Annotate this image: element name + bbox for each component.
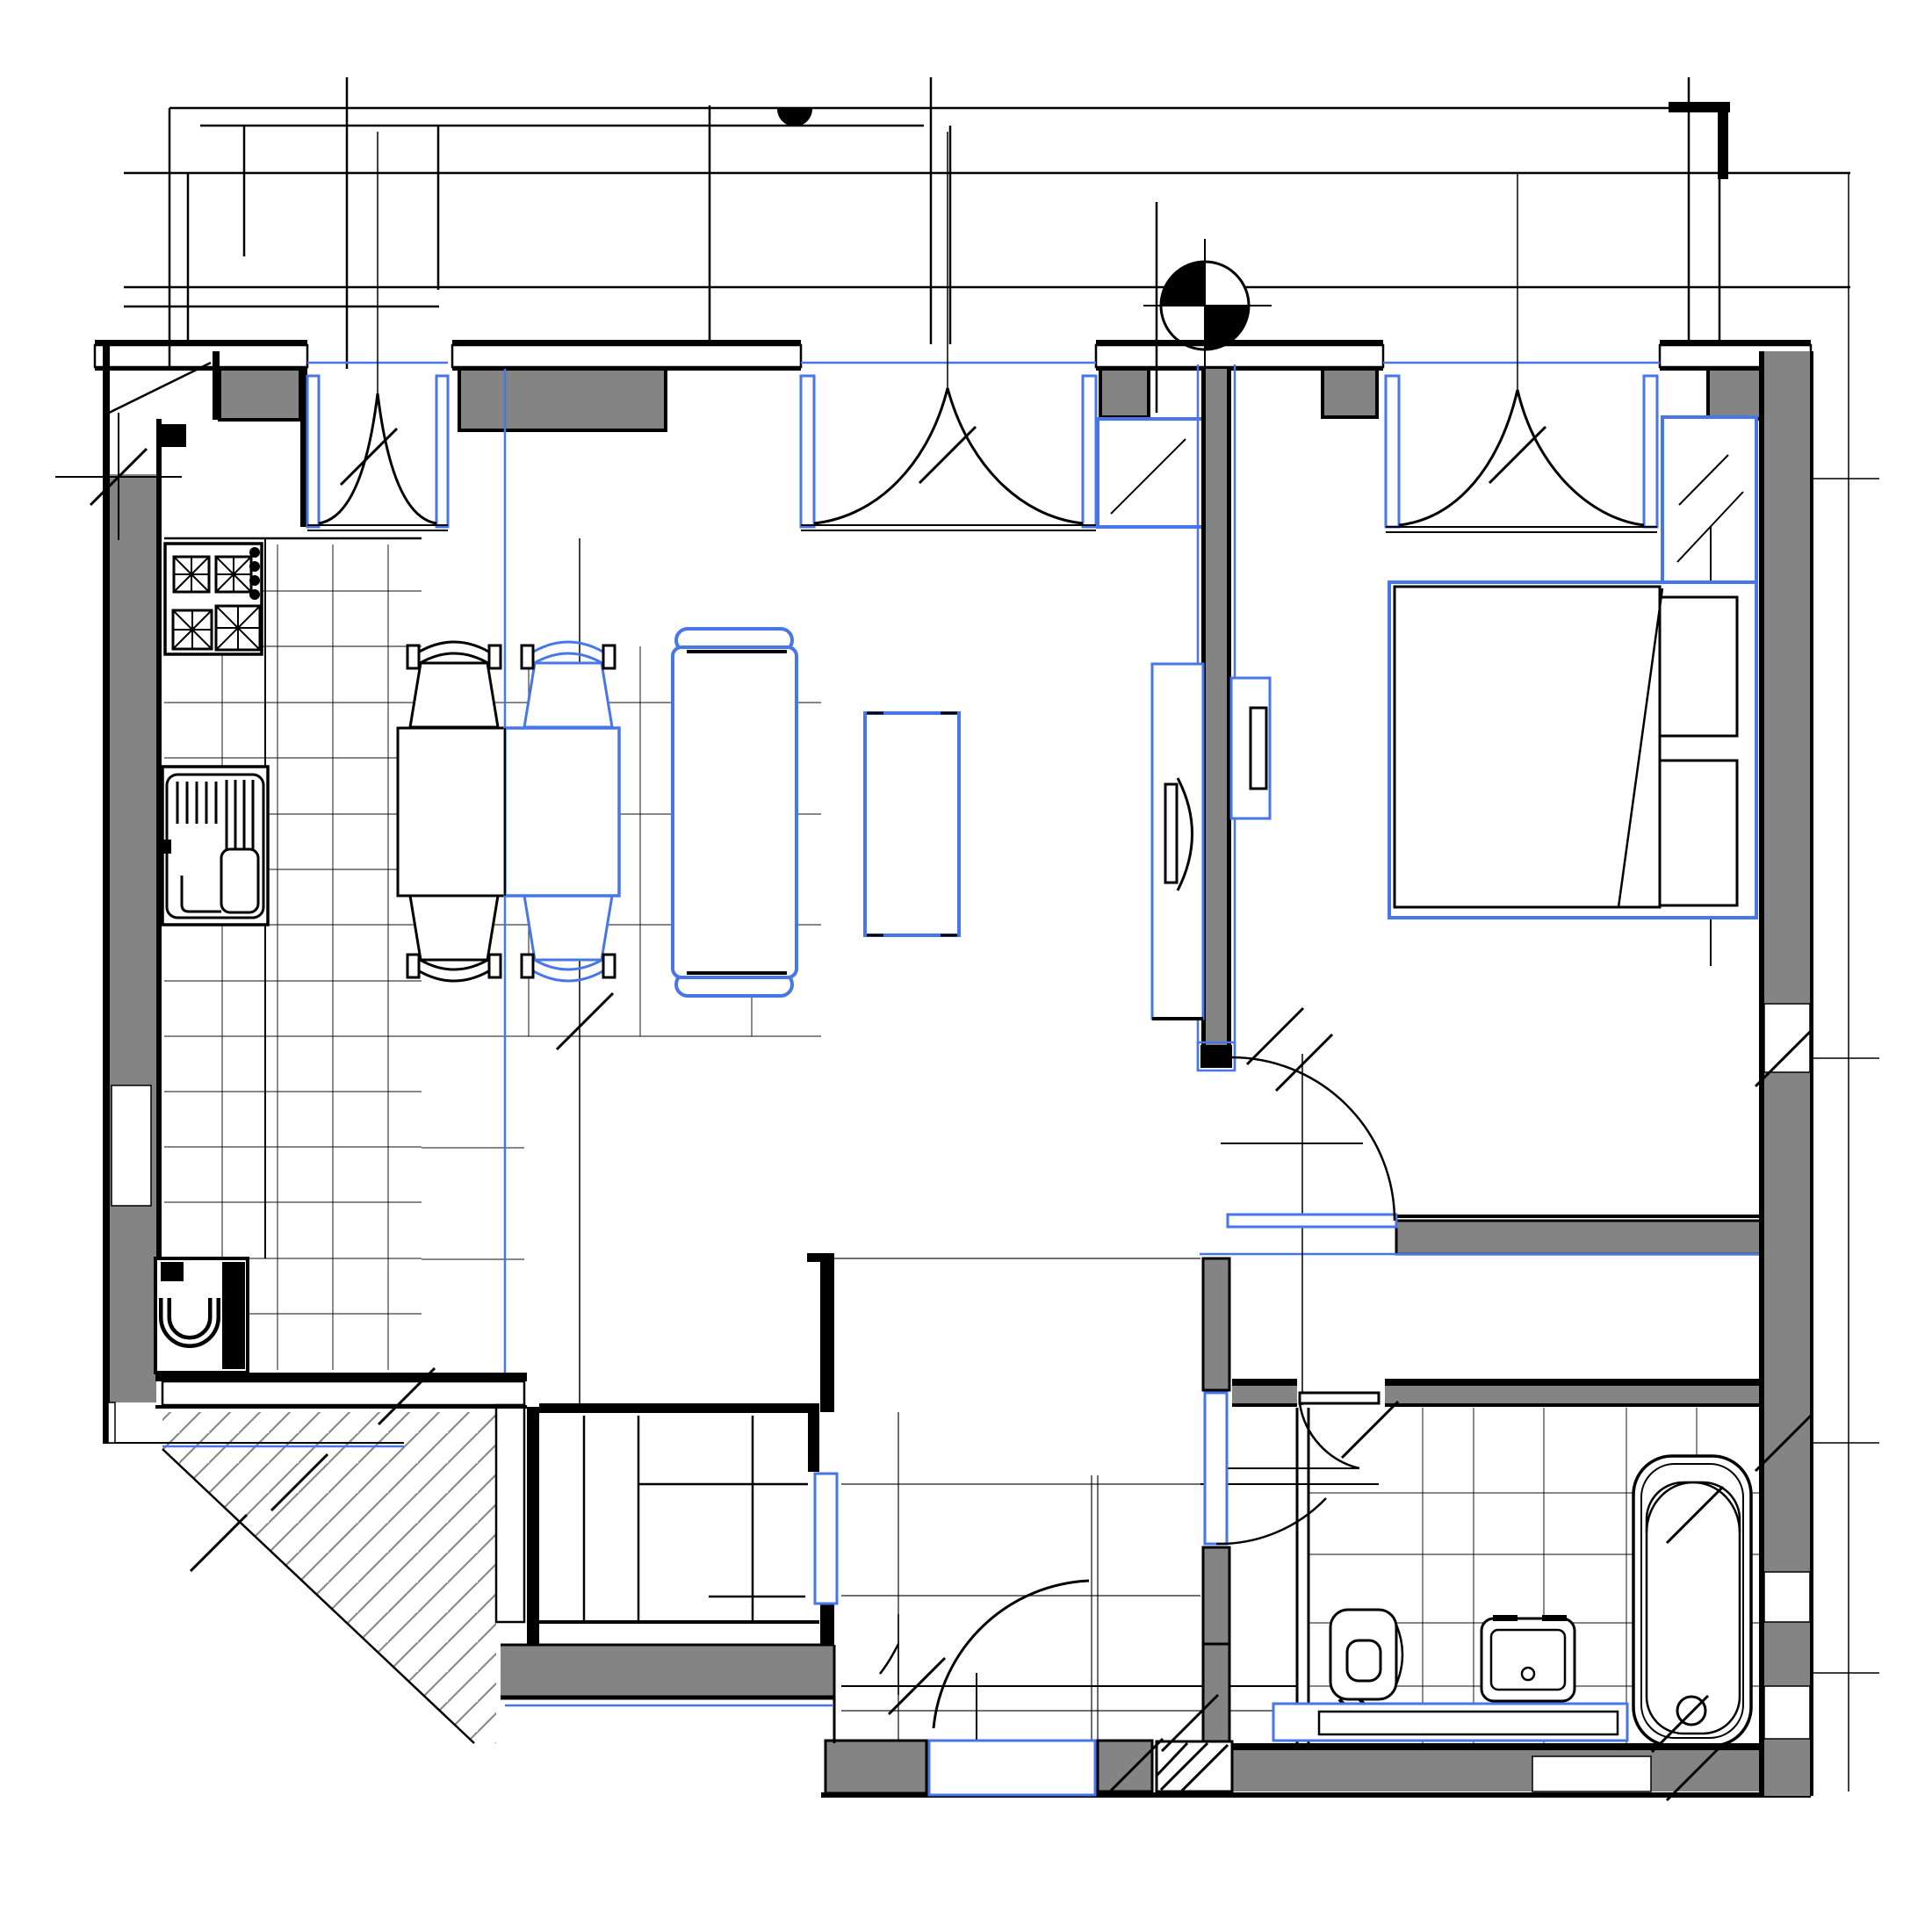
wall-pier bbox=[220, 369, 300, 420]
bedroom bbox=[1200, 527, 1811, 1405]
north-half-disc bbox=[777, 109, 812, 126]
burner bbox=[174, 557, 209, 592]
living-south-wall bbox=[155, 1373, 527, 1407]
stove-knob bbox=[249, 561, 260, 572]
wall-pier bbox=[1323, 369, 1377, 417]
wardrobe-unit bbox=[584, 1416, 808, 1622]
chair-black-bottom bbox=[407, 896, 501, 981]
door-leaf bbox=[1205, 1393, 1227, 1544]
door-leaf bbox=[1228, 1215, 1396, 1227]
washbasin bbox=[1481, 1615, 1575, 1701]
dining-table bbox=[398, 728, 619, 896]
tv-screen bbox=[1165, 784, 1177, 883]
bathroom-door bbox=[1300, 1393, 1379, 1468]
bathtub bbox=[1633, 1456, 1751, 1746]
dining-area bbox=[398, 369, 619, 1373]
chair-blue-top bbox=[522, 642, 615, 727]
bed bbox=[1389, 582, 1756, 918]
stove-knob bbox=[249, 589, 260, 600]
hatched-wall-piece bbox=[1157, 1741, 1232, 1791]
bedroom-south-wall bbox=[1200, 1054, 1811, 1405]
wall-window-gap bbox=[1764, 1686, 1810, 1739]
door-swing-arc bbox=[1231, 1057, 1395, 1221]
toilet bbox=[1330, 1610, 1402, 1708]
door-leaf bbox=[1300, 1393, 1379, 1403]
burner bbox=[216, 557, 251, 592]
chair-black-top bbox=[407, 642, 501, 727]
wardrobe-room bbox=[496, 1253, 898, 1743]
sofa bbox=[673, 629, 797, 996]
wall-window-gap bbox=[1764, 1572, 1810, 1622]
balcony-door-living bbox=[801, 132, 1096, 530]
balcony-door-kitchen bbox=[307, 132, 448, 530]
kitchen-sink bbox=[161, 767, 268, 925]
pillow bbox=[1660, 597, 1737, 736]
wall-pier bbox=[459, 369, 666, 430]
water-heater bbox=[155, 1258, 248, 1373]
tv-unit bbox=[1152, 664, 1203, 1019]
pilaster bbox=[162, 424, 186, 447]
faucet bbox=[161, 840, 171, 854]
entry-door bbox=[929, 1581, 1095, 1795]
vanity-counter bbox=[1273, 1704, 1627, 1741]
kitchen bbox=[155, 538, 422, 1373]
top-wall bbox=[95, 342, 1811, 586]
pony-wall bbox=[820, 1256, 834, 1412]
burner bbox=[216, 606, 260, 650]
right-wall bbox=[1759, 173, 1879, 1796]
cross-hatch-band bbox=[496, 1405, 524, 1622]
diagonal-hatch-area bbox=[103, 1412, 496, 1743]
coffee-table bbox=[865, 713, 959, 935]
stove-knob bbox=[249, 547, 260, 558]
wall-pier bbox=[1708, 369, 1761, 419]
bedroom-door bbox=[1228, 1057, 1396, 1227]
wall-niche bbox=[112, 1085, 151, 1206]
door-swing-arc bbox=[934, 1581, 1089, 1728]
entry-threshold bbox=[929, 1741, 1095, 1795]
balcony-door-bedroom bbox=[1383, 173, 1660, 532]
floor-plan-page bbox=[0, 0, 1932, 1932]
kitchen-floor-grid bbox=[164, 544, 422, 1370]
survey-marker bbox=[1143, 239, 1272, 372]
stove-knob bbox=[249, 575, 260, 586]
chair-blue-bottom bbox=[522, 896, 615, 981]
stove bbox=[165, 544, 262, 654]
door-swing-arc bbox=[880, 1644, 898, 1674]
burner bbox=[173, 610, 212, 649]
pillow bbox=[1660, 761, 1737, 905]
door-leaf bbox=[815, 1474, 837, 1604]
bedroom-window-frame bbox=[1662, 417, 1756, 586]
wall-pier bbox=[1100, 369, 1149, 417]
floor-plan-drawing bbox=[0, 0, 1932, 1932]
sink-basin bbox=[221, 849, 258, 912]
bedroom-shelf bbox=[1231, 678, 1270, 818]
wall-end-cap bbox=[1200, 1045, 1232, 1068]
